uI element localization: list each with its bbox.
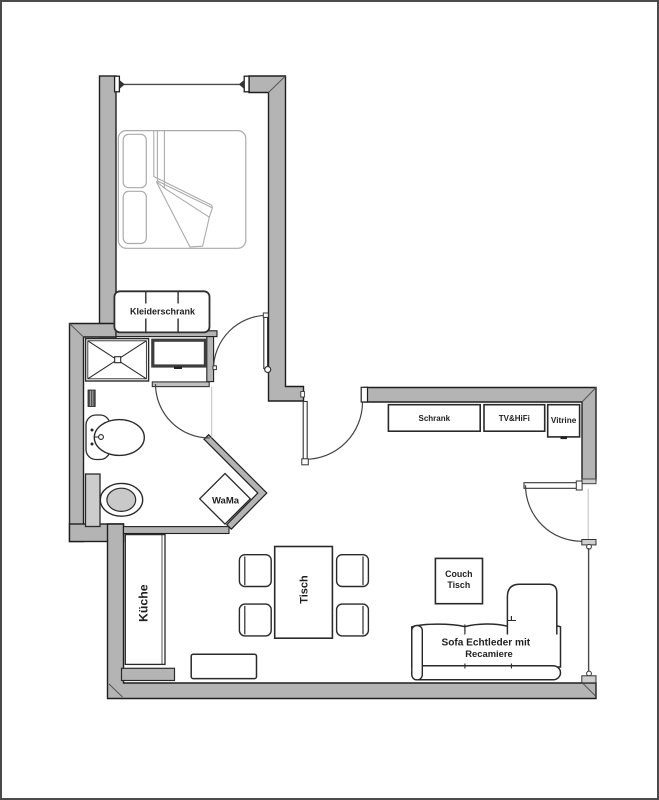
svg-text:Tisch: Tisch <box>299 575 311 604</box>
svg-text:Vitrine: Vitrine <box>551 416 577 425</box>
svg-text:Recamiere: Recamiere <box>465 648 512 659</box>
svg-text:Schrank: Schrank <box>419 414 451 423</box>
svg-text:Sofa Echtleder mit: Sofa Echtleder mit <box>441 638 530 649</box>
svg-text:Tisch: Tisch <box>447 580 470 590</box>
svg-text:TV&HiFi: TV&HiFi <box>499 414 530 423</box>
svg-text:Küche: Küche <box>137 584 151 622</box>
svg-text:WaMa: WaMa <box>212 495 240 506</box>
svg-text:Couch: Couch <box>445 569 472 579</box>
svg-text:Kleiderschrank: Kleiderschrank <box>130 306 196 316</box>
